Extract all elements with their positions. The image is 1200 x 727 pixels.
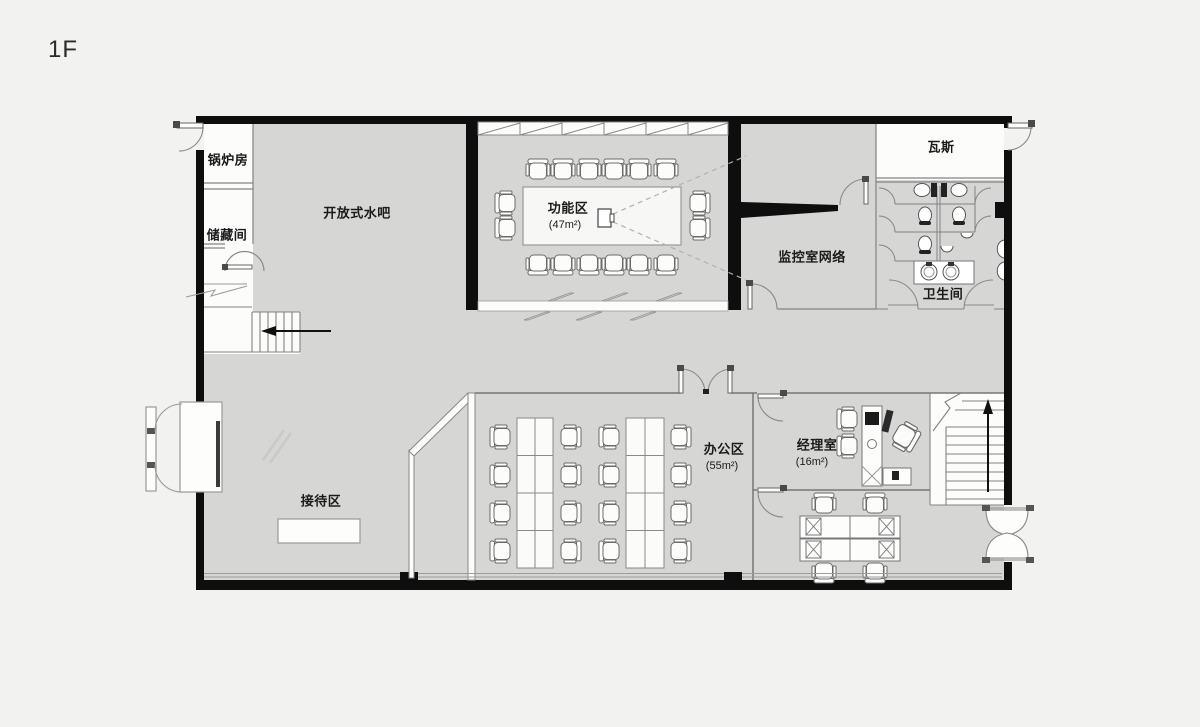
chair-icon [577, 159, 601, 179]
room-label-function: 功能区 [548, 198, 589, 217]
room-area-function: (47m²) [549, 219, 581, 231]
chair-icon [627, 255, 651, 275]
chair-icon [495, 191, 515, 215]
chair-icon [490, 463, 510, 487]
chair-icon [602, 159, 626, 179]
chair-icon [551, 159, 575, 179]
room-label-manager: 经理室 [797, 435, 838, 454]
chair-icon [671, 463, 691, 487]
window-hatch-band [478, 122, 728, 135]
reception-desk [278, 519, 360, 543]
chair-icon [561, 539, 581, 563]
room-label-boiler: 锅炉房 [208, 150, 249, 169]
chair-icon [495, 216, 515, 240]
lounge-table [800, 516, 900, 561]
room-label-storage: 储藏间 [207, 225, 248, 244]
chair-icon [490, 501, 510, 525]
room-area-manager: (16m²) [796, 456, 828, 468]
floor-plan-canvas: 1F 锅炉房 储藏间 开放式水吧 功能区 (47m²) 瓦斯 监控室网络 卫生间… [0, 0, 1200, 727]
chair-icon [561, 425, 581, 449]
room-label-water-bar: 开放式水吧 [323, 203, 391, 222]
chair-icon [599, 539, 619, 563]
chair-icon [863, 493, 887, 513]
chair-icon [599, 463, 619, 487]
chair-icon [490, 425, 510, 449]
chair-icon [837, 407, 857, 431]
chair-icon [654, 255, 678, 275]
entrance-vestibule [146, 402, 222, 492]
chair-icon [526, 255, 550, 275]
floor-plan-drawing [0, 0, 1200, 727]
chair-icon [561, 463, 581, 487]
chair-icon [837, 434, 857, 458]
room-label-monitor: 监控室网络 [778, 247, 846, 266]
chair-icon [577, 255, 601, 275]
chair-icon [526, 159, 550, 179]
chair-icon [599, 425, 619, 449]
projector-icon [598, 209, 614, 227]
chair-icon [602, 255, 626, 275]
chair-icon [671, 425, 691, 449]
chair-icon [654, 159, 678, 179]
chair-icon [490, 539, 510, 563]
room-label-restroom: 卫生间 [923, 284, 964, 303]
chair-icon [671, 501, 691, 525]
chair-icon [599, 501, 619, 525]
room-label-gas: 瓦斯 [927, 137, 954, 156]
chair-icon [690, 191, 710, 215]
chair-icon [551, 255, 575, 275]
chair-icon [690, 216, 710, 240]
boiler-door-arc [173, 121, 203, 151]
floor-label: 1F [48, 36, 78, 64]
chair-icon [671, 539, 691, 563]
room-area-office: (55m²) [706, 460, 738, 472]
chair-icon [561, 501, 581, 525]
gas-door-arc [1008, 120, 1035, 150]
sink-counter [914, 261, 974, 284]
chair-icon [812, 493, 836, 513]
room-label-office: 办公区 [704, 439, 745, 458]
chair-icon [627, 159, 651, 179]
room-label-reception: 接待区 [301, 491, 342, 510]
